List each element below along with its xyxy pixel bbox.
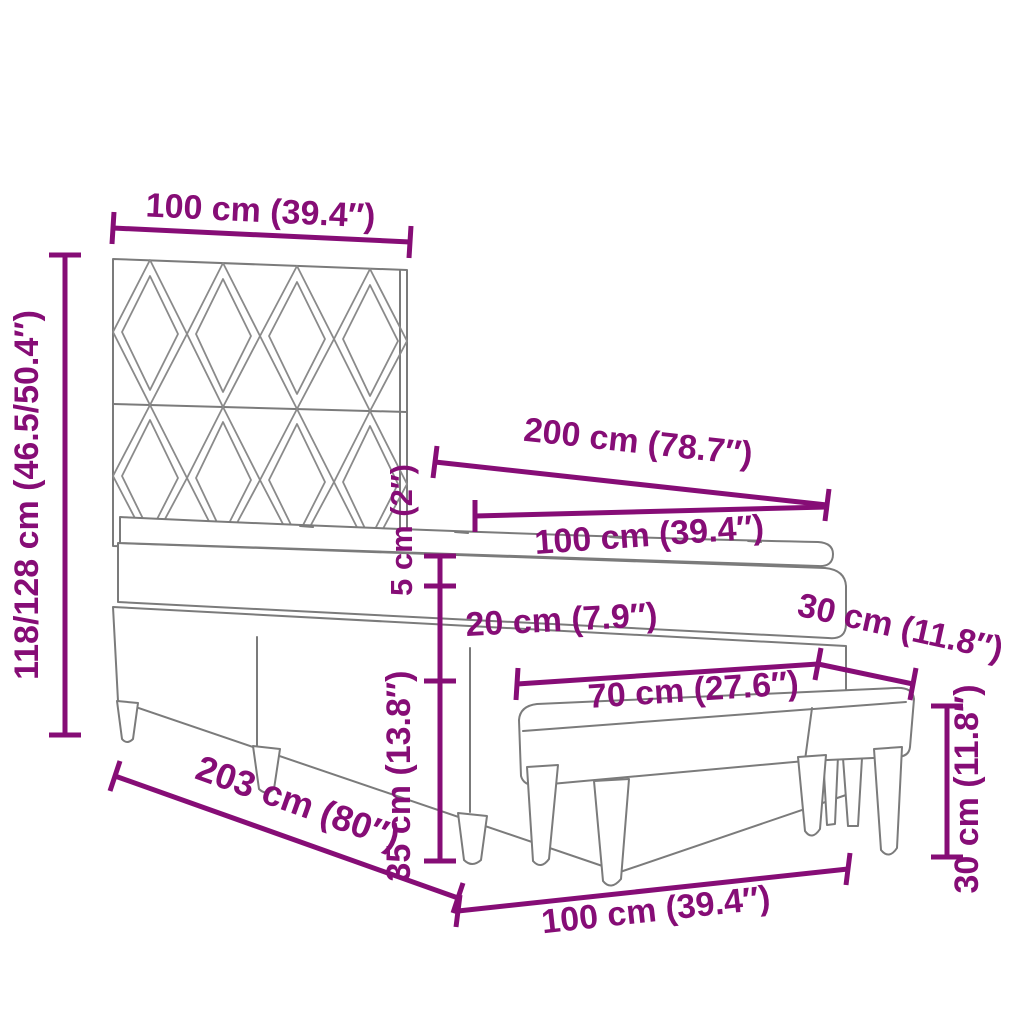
dim-bench-height-label: 30 cm (11.8″) xyxy=(948,684,986,893)
dim-headboard-height-label: 118/128 cm (46.5/50.4″) xyxy=(8,310,46,680)
dim-headboard-width: 100 cm (39.4″) xyxy=(112,186,411,258)
dim-bed-width-bottom: 100 cm (39.4″) xyxy=(456,853,850,941)
dim-headboard-width-label: 100 cm (39.4″) xyxy=(145,186,376,235)
bed-dimension-diagram: 100 cm (39.4″) 118/128 cm (46.5/50.4″) 2… xyxy=(0,0,1024,1024)
dim-bench-height: 30 cm (11.8″) xyxy=(931,684,986,893)
bed-leg xyxy=(117,701,138,742)
dimension-diagram-canvas: 100 cm (39.4″) 118/128 cm (46.5/50.4″) 2… xyxy=(0,0,1024,1024)
dim-topper-height-label: 5 cm (2″) xyxy=(384,464,419,596)
bed-leg xyxy=(458,813,487,864)
dim-bed-length-top: 200 cm (78.7″) xyxy=(433,411,829,521)
bench-leg xyxy=(798,755,826,836)
headboard-panel xyxy=(113,259,407,554)
dim-headboard-height: 118/128 cm (46.5/50.4″) xyxy=(8,255,81,735)
dim-bed-length-top-label: 200 cm (78.7″) xyxy=(522,411,755,474)
bench-leg xyxy=(874,747,902,855)
bed-leg xyxy=(843,758,862,826)
